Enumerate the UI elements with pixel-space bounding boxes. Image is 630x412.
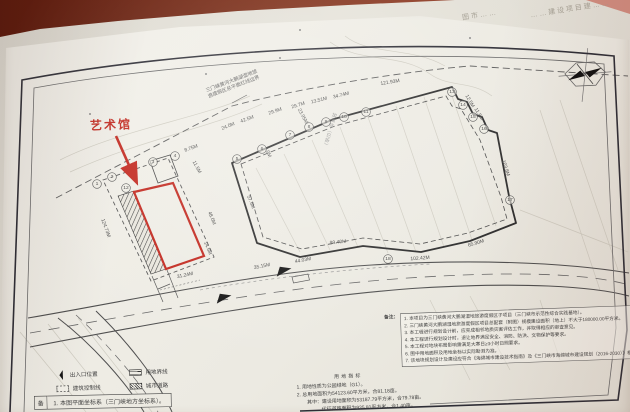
legend-label: 用地界线 <box>145 367 168 376</box>
notes-block: 备注： 1. 本项目为三门峡黄河大鹏湖湿地旅游度假区子项目（三门峡市示范性综合实… <box>384 306 621 367</box>
building-control-line-icon <box>57 385 70 392</box>
legend-item-entrance: 出入口位置 <box>56 369 113 379</box>
land-use-indicators: 用地指标 1. 用地性质为公园绿地（G1）。 2. 总用地面积为54123.60… <box>296 368 468 412</box>
legend-item-boundary: 用地界线 <box>129 366 186 376</box>
art-building-cluster <box>103 155 214 302</box>
entrance-arrow-icon <box>215 264 293 303</box>
notes-box: 1. 本项目为三门峡黄河大鹏湖湿地旅游度假区子项目（三门峡市示范性综合实践基地）… <box>400 305 630 367</box>
photo-canvas: 图市…… ……建设项目建…… <box>0 0 630 412</box>
legend-label: 建筑控制线 <box>73 383 101 392</box>
city-road-icon <box>130 383 143 390</box>
east-parcel-outline <box>232 87 516 257</box>
titleblock-row: 备 1. 本图平面坐标系（三门峡地方坐标系）。 <box>34 393 172 410</box>
road-side-structure <box>292 274 310 283</box>
cluster-connectors <box>152 270 178 302</box>
notes-title: 备注： <box>384 314 400 368</box>
art-museum-label: 艺术馆 <box>90 115 133 133</box>
entrance-arrow-icon <box>59 370 63 380</box>
legend-item-control-line: 建筑控制线 <box>56 383 113 393</box>
legend-label: 出入口位置 <box>70 370 98 379</box>
titleblock-row-label: 备 <box>34 396 47 410</box>
legend-label: 城市道路 <box>146 381 169 390</box>
legend-item-road: 城市道路 <box>130 380 187 390</box>
titleblock-row-text: 1. 本图平面坐标系（三门峡地方坐标系）。 <box>47 393 172 409</box>
site-boundary-icon <box>129 369 142 376</box>
east-parcel <box>232 87 516 257</box>
boundary-note-leader <box>232 95 247 103</box>
